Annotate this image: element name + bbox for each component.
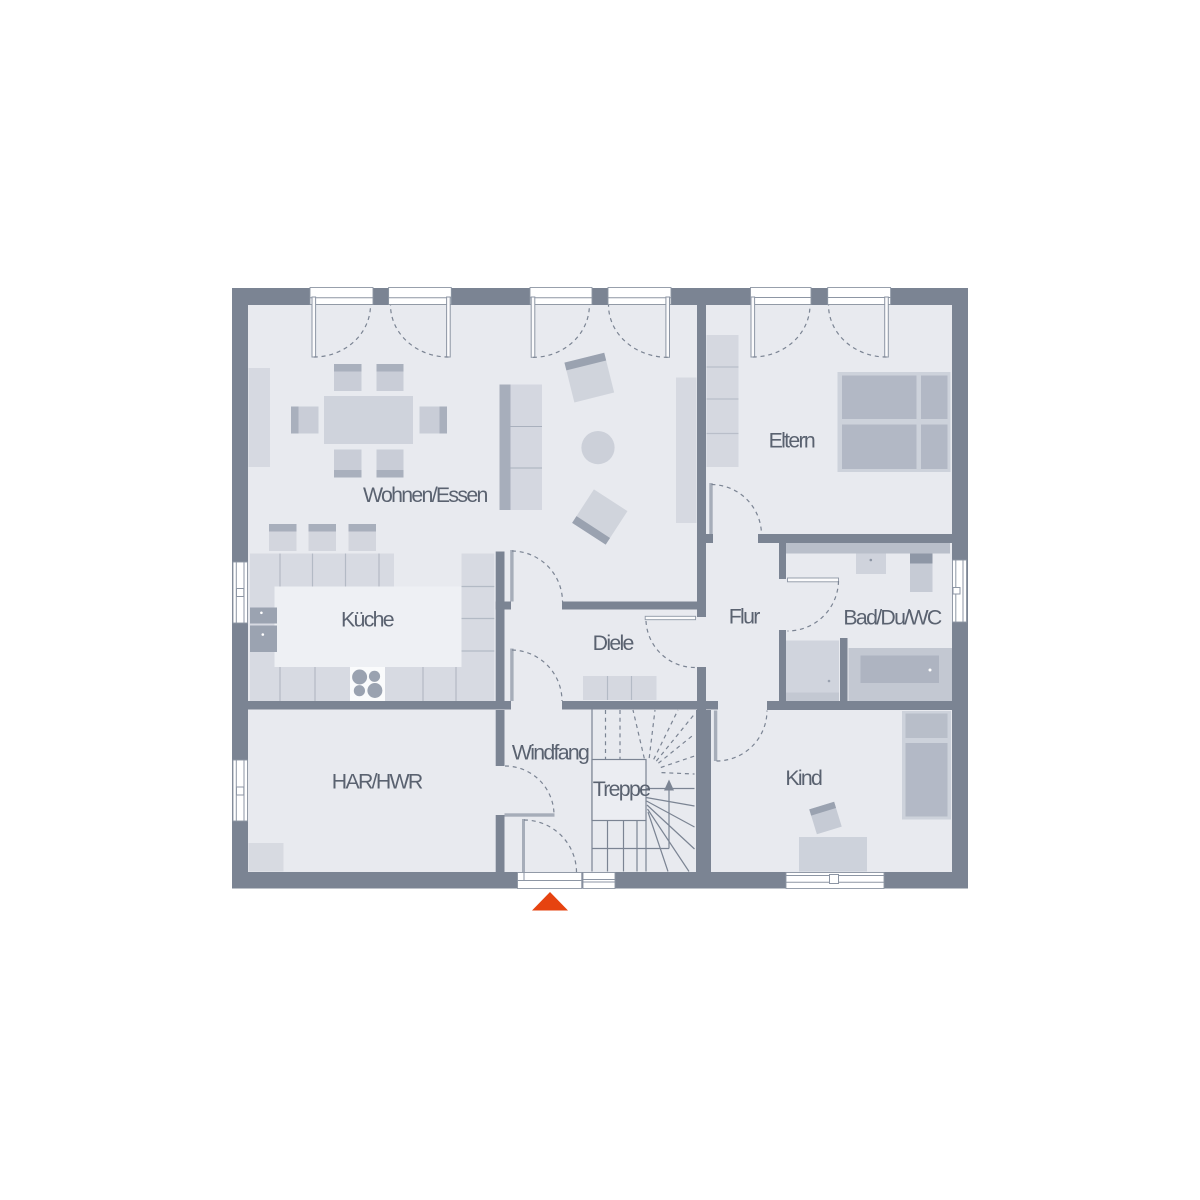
svg-text:Eltern: Eltern	[769, 429, 815, 453]
svg-text:Windfang: Windfang	[512, 741, 589, 765]
svg-text:Bad/Du/WC: Bad/Du/WC	[843, 606, 941, 630]
svg-text:Flur: Flur	[729, 605, 760, 629]
svg-text:HAR/HWR: HAR/HWR	[332, 770, 423, 794]
svg-text:Küche: Küche	[341, 607, 394, 631]
svg-text:Treppe: Treppe	[593, 777, 650, 801]
svg-text:Wohnen/Essen: Wohnen/Essen	[363, 483, 488, 507]
svg-text:Kind: Kind	[785, 766, 822, 790]
svg-text:Diele: Diele	[593, 631, 634, 655]
